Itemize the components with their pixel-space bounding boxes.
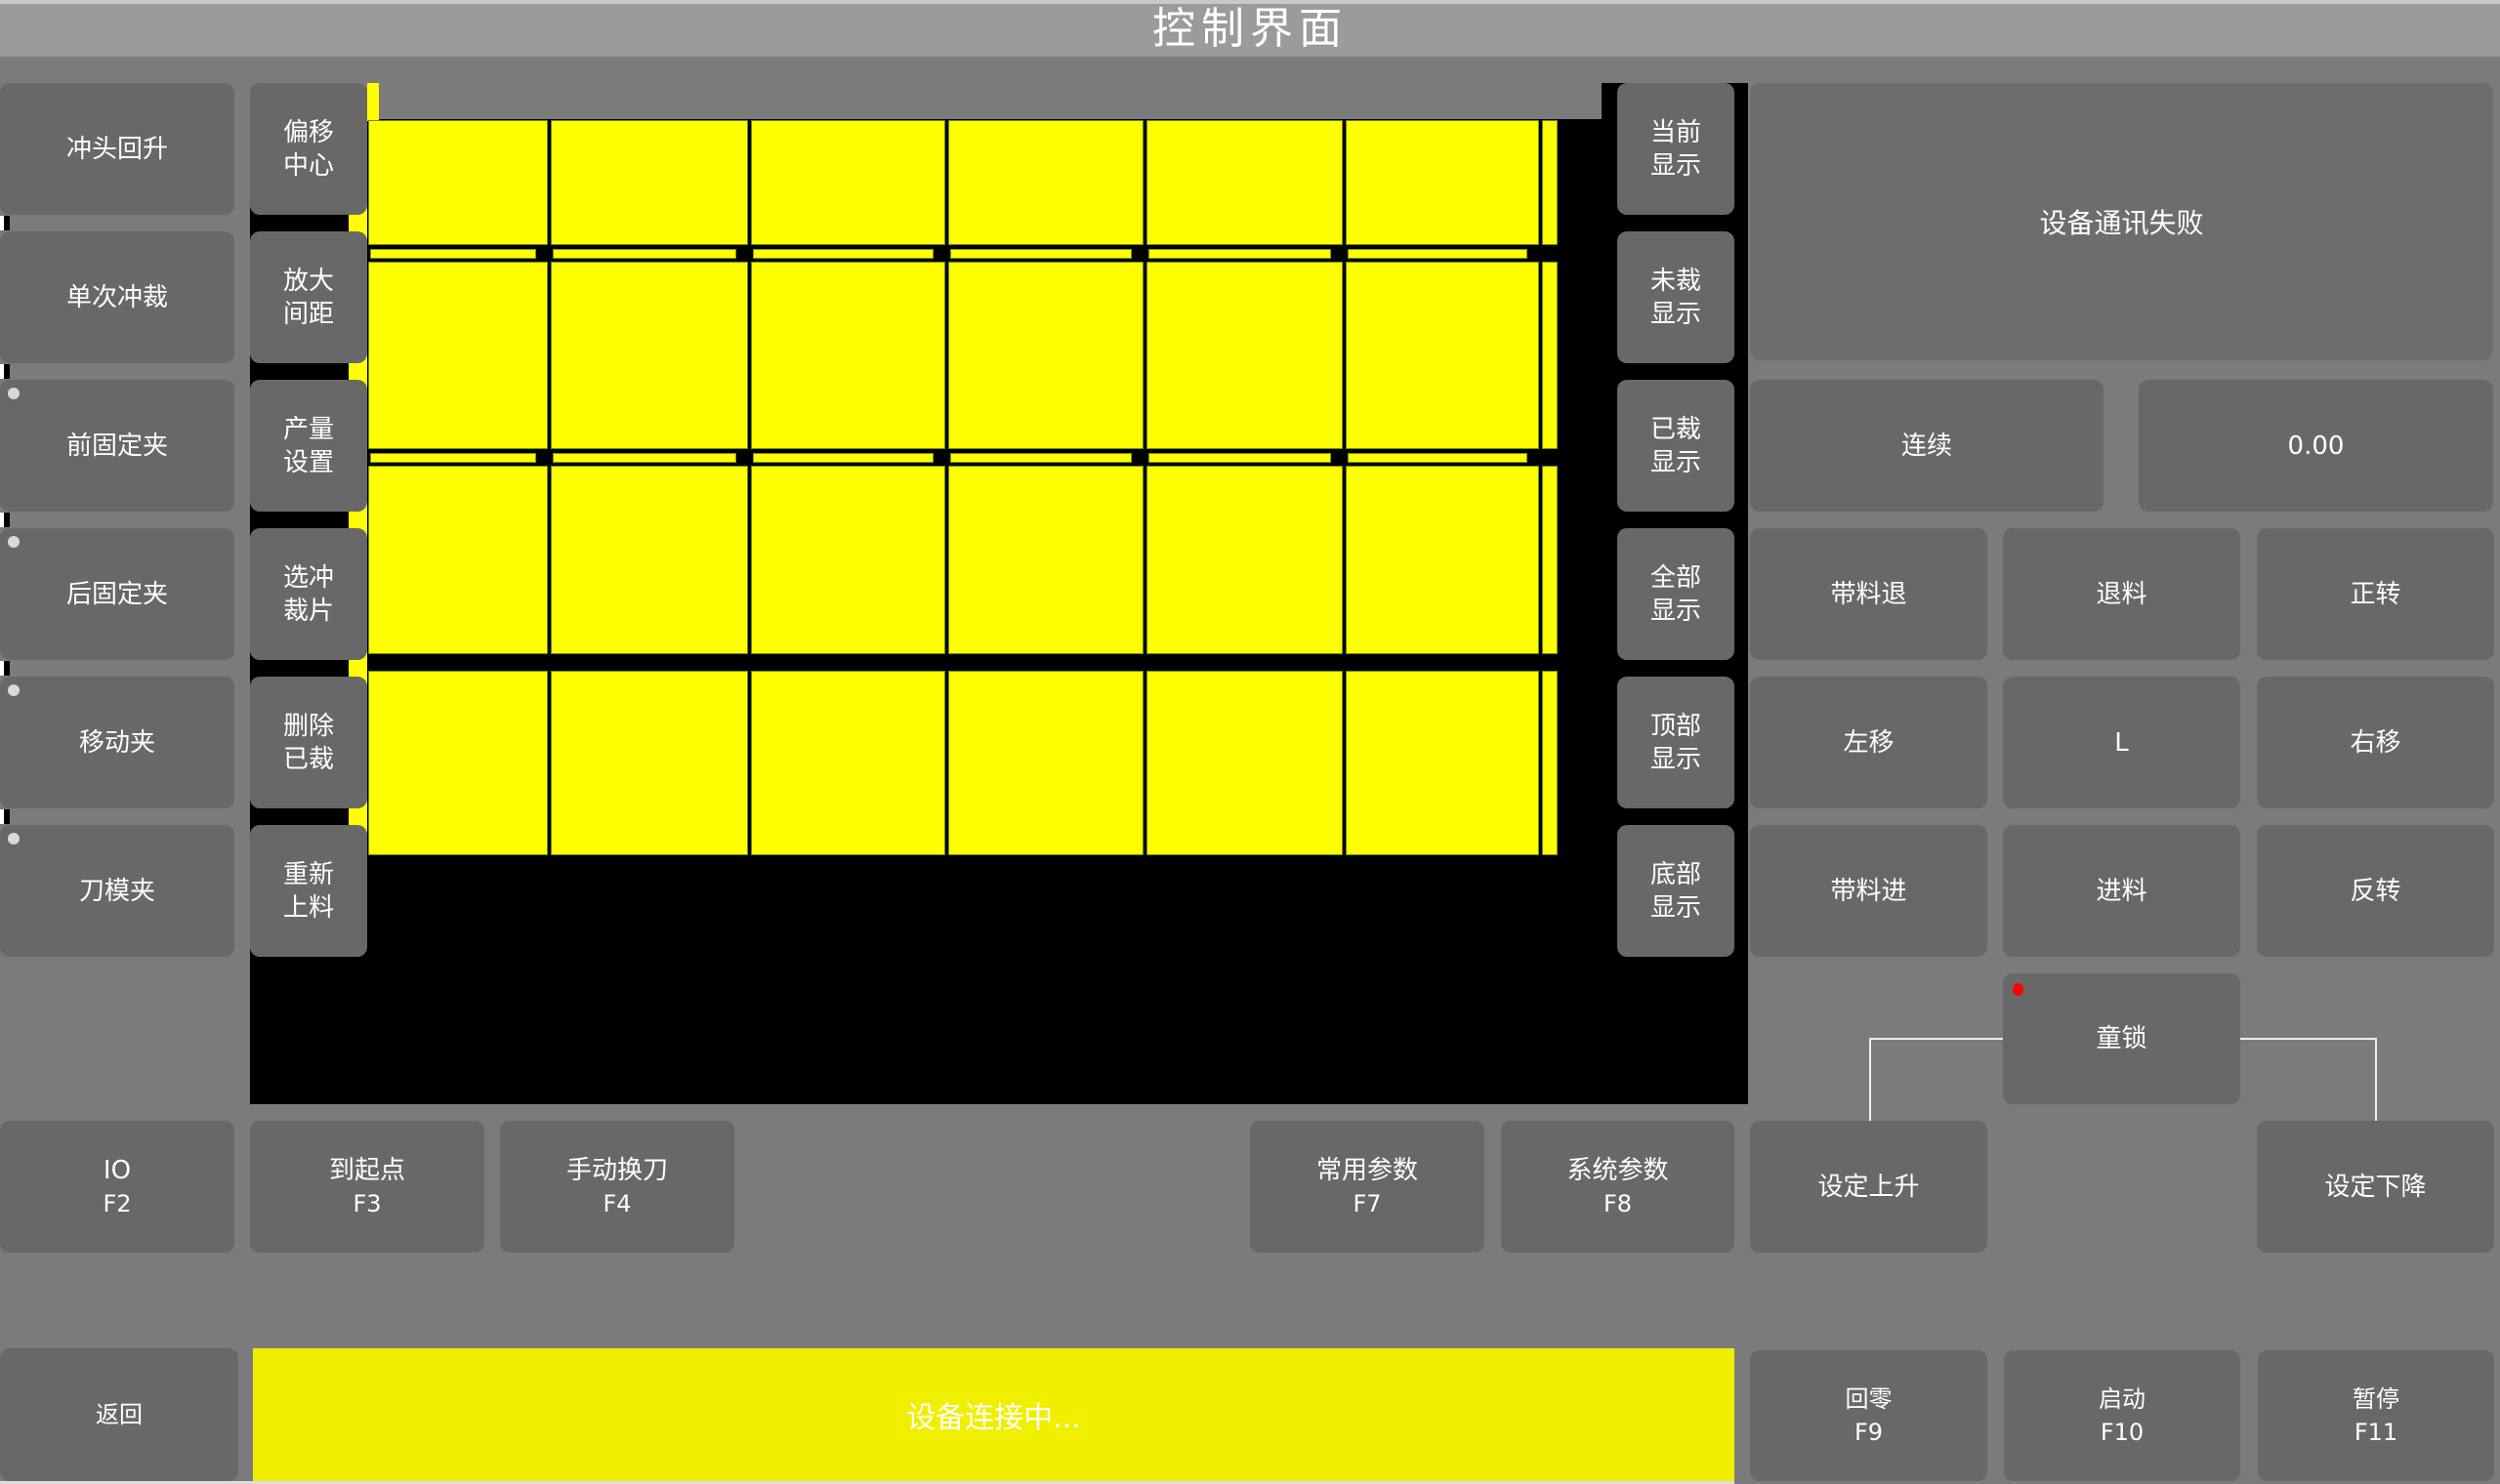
device-message-text: 设备通讯失败 [2039, 202, 2203, 241]
jog-feed-label: 进料 [2096, 875, 2146, 908]
left-button-5[interactable]: 移动夹 [0, 677, 234, 808]
scrap-strip[interactable] [553, 249, 736, 259]
connector-line-right-v [2375, 1038, 2377, 1121]
left-button-5-label: 移动夹 [79, 726, 155, 760]
jog-eject-label: 退料 [2096, 578, 2146, 611]
value-display-button[interactable]: 0.00 [2139, 380, 2493, 512]
tool-button-4-label: 选冲 裁片 [283, 561, 334, 628]
tool-button-2[interactable]: 放大 间距 [250, 231, 367, 363]
nesting-canvas [250, 83, 1748, 1104]
left-button-6[interactable]: 刀模夹 [0, 825, 234, 957]
jog-l-key-label: L [2114, 726, 2129, 760]
cut-piece[interactable] [1146, 671, 1343, 855]
edge-tick-black [4, 216, 10, 230]
pause-fkey: F11 [2354, 1416, 2397, 1449]
mode-continuous-label: 连续 [1901, 430, 1952, 463]
material-edge-marker [367, 83, 379, 121]
jog-forward-rotate-label: 正转 [2350, 578, 2400, 611]
tool-button-3-label: 产量 设置 [283, 413, 334, 479]
manual-toolchange-fkey: F4 [603, 1187, 631, 1220]
scrap-strip[interactable] [1348, 249, 1527, 259]
home-label: 回零 [1846, 1382, 1893, 1416]
jog-eject-button[interactable]: 退料 [2003, 528, 2240, 660]
indicator-dot [8, 388, 20, 399]
common-params-label: 常用参数 [1316, 1154, 1418, 1187]
jog-feed-button[interactable]: 进料 [2003, 825, 2240, 957]
connector-line-left-v [1869, 1038, 1871, 1121]
common-params-f7-button[interactable]: 常用参数 F7 [1250, 1121, 1484, 1253]
system-params-label: 系统参数 [1566, 1154, 1668, 1187]
to-origin-f3-button[interactable]: 到起点 F3 [250, 1121, 484, 1253]
cut-piece[interactable] [1146, 466, 1343, 654]
value-text: 0.00 [2288, 430, 2345, 463]
edge-tick-black [4, 513, 10, 527]
back-label: 返回 [96, 1398, 143, 1431]
tool-button-5[interactable]: 删除 已裁 [250, 677, 367, 808]
cut-piece[interactable] [751, 120, 945, 245]
edge-tick-black [4, 809, 10, 824]
cut-piece[interactable] [1542, 262, 1558, 449]
display-button-4-label: 全部 显示 [1650, 561, 1701, 628]
pause-label: 暂停 [2353, 1382, 2399, 1416]
scrap-strip[interactable] [950, 249, 1132, 259]
child-lock-label: 童锁 [2096, 1022, 2146, 1055]
alarm-dot [2013, 983, 2023, 996]
display-button-4[interactable]: 全部 显示 [1617, 528, 1734, 660]
left-button-4-label: 后固定夹 [66, 578, 168, 611]
edge-tick-black [4, 364, 10, 379]
cut-piece[interactable] [551, 466, 748, 654]
start-fkey: F10 [2101, 1416, 2144, 1449]
scrap-strip[interactable] [753, 453, 934, 463]
cut-piece[interactable] [1542, 671, 1558, 855]
cut-piece[interactable] [551, 671, 748, 855]
to-origin-label: 到起点 [329, 1154, 405, 1187]
device-message-box: 设备通讯失败 [1750, 83, 2493, 360]
tool-button-1[interactable]: 偏移 中心 [250, 83, 367, 215]
display-button-6-label: 底部 显示 [1650, 858, 1701, 925]
scrap-strip[interactable] [950, 453, 1132, 463]
scrap-strip[interactable] [753, 249, 934, 259]
control-screen: 控制界面 冲头回升单次冲裁前固定夹后固定夹移动夹刀模夹 偏移 中心放大 间距产量… [0, 0, 2500, 1484]
cut-piece[interactable] [751, 262, 945, 449]
connector-line-right-h [2240, 1038, 2377, 1040]
tool-button-5-label: 删除 已裁 [283, 710, 334, 776]
io-f2-button[interactable]: IO F2 [0, 1121, 234, 1253]
canvas-top-strip [250, 83, 1602, 119]
tool-button-4[interactable]: 选冲 裁片 [250, 528, 367, 660]
cut-piece[interactable] [368, 262, 548, 449]
jog-move-right-button[interactable]: 右移 [2257, 677, 2494, 808]
cut-piece[interactable] [1542, 120, 1558, 245]
scrap-strip[interactable] [1348, 453, 1527, 463]
set-fall-button[interactable]: 设定下降 [2257, 1121, 2494, 1253]
manual-toolchange-f4-button[interactable]: 手动换刀 F4 [500, 1121, 734, 1253]
cut-piece[interactable] [948, 262, 1144, 449]
display-button-5[interactable]: 顶部 显示 [1617, 677, 1734, 808]
cut-piece[interactable] [1346, 120, 1539, 245]
tool-button-6-label: 重新 上料 [283, 858, 334, 925]
jog-forward-rotate-button[interactable]: 正转 [2257, 528, 2494, 660]
cut-piece[interactable] [368, 671, 548, 855]
display-button-1[interactable]: 当前 显示 [1617, 83, 1734, 215]
back-button[interactable]: 返回 [0, 1348, 238, 1481]
jog-reverse-rotate-button[interactable]: 反转 [2257, 825, 2494, 957]
scrap-strip[interactable] [1148, 453, 1331, 463]
cut-piece[interactable] [1346, 262, 1539, 449]
manual-toolchange-label: 手动换刀 [566, 1154, 668, 1187]
display-button-2[interactable]: 未裁 显示 [1617, 231, 1734, 363]
jog-reverse-rotate-label: 反转 [2350, 875, 2400, 908]
display-button-3-label: 已裁 显示 [1650, 413, 1701, 479]
to-origin-fkey: F3 [353, 1187, 381, 1220]
connector-line-left-h [1869, 1038, 2005, 1040]
tool-button-3[interactable]: 产量 设置 [250, 380, 367, 512]
cut-piece[interactable] [948, 120, 1144, 245]
cut-piece[interactable] [551, 120, 748, 245]
start-f10-button[interactable]: 启动 F10 [2004, 1350, 2240, 1481]
page-title: 控制界面 [0, 4, 2500, 55]
left-button-4[interactable]: 后固定夹 [0, 528, 234, 660]
jog-feed-back-button[interactable]: 带料退 [1750, 528, 1987, 660]
edge-tick-black [4, 661, 10, 676]
left-button-2-label: 单次冲裁 [66, 281, 168, 314]
cut-piece[interactable] [751, 671, 945, 855]
title-bar: 控制界面 [0, 0, 2500, 57]
jog-feed-back-label: 带料退 [1830, 578, 1906, 611]
display-button-2-label: 未裁 显示 [1650, 265, 1701, 331]
left-button-2[interactable]: 单次冲裁 [0, 231, 234, 363]
io-label: IO [104, 1154, 131, 1187]
system-params-f8-button[interactable]: 系统参数 F8 [1501, 1121, 1734, 1253]
io-fkey: F2 [103, 1187, 131, 1220]
scrap-strip[interactable] [1148, 249, 1331, 259]
display-button-5-label: 顶部 显示 [1650, 710, 1701, 776]
mode-continuous-button[interactable]: 连续 [1750, 380, 2104, 512]
cut-piece[interactable] [1542, 466, 1558, 654]
cut-piece[interactable] [1346, 466, 1539, 654]
tool-button-6[interactable]: 重新 上料 [250, 825, 367, 957]
set-rise-label: 设定上升 [1817, 1171, 1919, 1204]
jog-l-key-button[interactable]: L [2003, 677, 2240, 808]
cut-piece[interactable] [1146, 120, 1343, 245]
connection-status-bar: 设备连接中... [253, 1348, 1734, 1481]
scrap-strip[interactable] [553, 453, 736, 463]
jog-move-right-label: 右移 [2350, 726, 2400, 760]
cut-piece[interactable] [948, 466, 1144, 654]
cut-piece[interactable] [1146, 262, 1343, 449]
left-button-1[interactable]: 冲头回升 [0, 83, 234, 215]
cut-piece[interactable] [948, 671, 1144, 855]
cut-piece[interactable] [751, 466, 945, 654]
jog-move-left-button[interactable]: 左移 [1750, 677, 1987, 808]
tool-button-1-label: 偏移 中心 [283, 116, 334, 183]
indicator-dot [8, 833, 20, 845]
common-params-fkey: F7 [1353, 1187, 1381, 1220]
left-button-3[interactable]: 前固定夹 [0, 380, 234, 512]
scrap-strip[interactable] [370, 453, 536, 463]
jog-feed-in-button[interactable]: 带料进 [1750, 825, 1987, 957]
left-button-6-label: 刀模夹 [79, 875, 155, 908]
cut-piece[interactable] [368, 120, 548, 245]
cut-piece[interactable] [368, 466, 548, 654]
connection-status-text: 设备连接中... [906, 1393, 1081, 1436]
display-button-3[interactable]: 已裁 显示 [1617, 380, 1734, 512]
left-button-1-label: 冲头回升 [66, 133, 168, 166]
indicator-dot [8, 684, 20, 696]
left-button-3-label: 前固定夹 [66, 430, 168, 463]
indicator-dot [8, 536, 20, 548]
jog-feed-in-label: 带料进 [1830, 875, 1906, 908]
tool-button-2-label: 放大 间距 [283, 265, 334, 331]
cut-piece[interactable] [551, 262, 748, 449]
system-params-fkey: F8 [1604, 1187, 1632, 1220]
scrap-strip[interactable] [370, 249, 536, 259]
start-label: 启动 [2099, 1382, 2146, 1416]
home-f9-button[interactable]: 回零 F9 [1750, 1350, 1987, 1481]
pause-f11-button[interactable]: 暂停 F11 [2258, 1350, 2494, 1481]
set-fall-label: 设定下降 [2324, 1171, 2426, 1204]
child-lock-button[interactable]: 童锁 [2003, 973, 2240, 1104]
cut-piece[interactable] [1346, 671, 1539, 855]
jog-move-left-label: 左移 [1843, 726, 1894, 760]
set-rise-button[interactable]: 设定上升 [1750, 1121, 1987, 1253]
display-button-6[interactable]: 底部 显示 [1617, 825, 1734, 957]
home-fkey: F9 [1854, 1416, 1883, 1449]
display-button-1-label: 当前 显示 [1650, 116, 1701, 183]
